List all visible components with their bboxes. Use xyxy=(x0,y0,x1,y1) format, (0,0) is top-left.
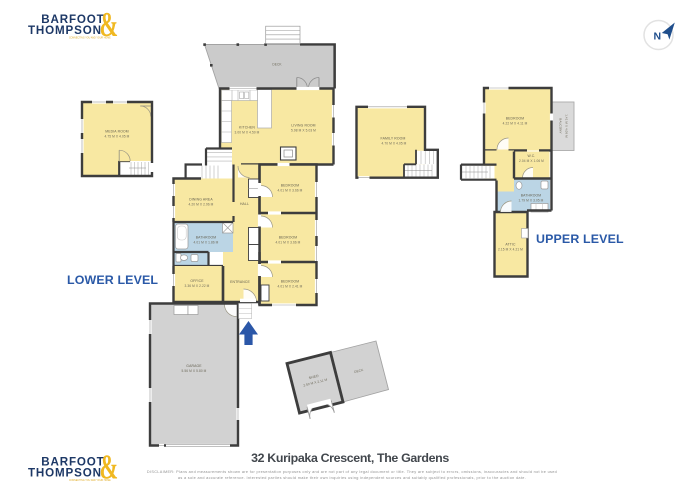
svg-text:GARAGE: GARAGE xyxy=(186,364,202,368)
svg-text:W.C.: W.C. xyxy=(528,154,536,158)
svg-text:BATHROOM: BATHROOM xyxy=(521,194,542,198)
svg-text:as a sole and accurate referen: as a sole and accurate reference. Intere… xyxy=(178,476,526,480)
svg-text:2.04 M X 1.06 M: 2.04 M X 1.06 M xyxy=(519,159,544,163)
svg-text:32 Kuripaka Crescent, The Gard: 32 Kuripaka Crescent, The Gardens xyxy=(251,451,449,465)
svg-text:1.79 M X 3.05 M: 1.79 M X 3.05 M xyxy=(519,199,544,203)
svg-text:5.56 M X 5.80 M: 5.56 M X 5.80 M xyxy=(182,369,207,373)
svg-text:DECK: DECK xyxy=(272,63,282,67)
svg-text:4.01 M X 1.86 M: 4.01 M X 1.86 M xyxy=(194,241,219,245)
svg-text:1.41 M X 4.08 M: 1.41 M X 4.08 M xyxy=(565,114,569,138)
svg-text:BEDROOM: BEDROOM xyxy=(506,117,525,121)
svg-text:OFFICE: OFFICE xyxy=(190,279,204,283)
svg-text:2.15 M X 4.21 M: 2.15 M X 4.21 M xyxy=(498,248,523,252)
svg-text:3.00 M X 4.50 M: 3.00 M X 4.50 M xyxy=(235,131,260,135)
svg-text:4.01 M X 2.41 M: 4.01 M X 2.41 M xyxy=(278,285,303,289)
svg-text:4.22 M X 4.11 M: 4.22 M X 4.11 M xyxy=(503,122,528,126)
svg-text:FAMILY ROOM: FAMILY ROOM xyxy=(381,137,406,141)
svg-text:4.20 M X 2.96 M: 4.20 M X 2.96 M xyxy=(189,203,214,207)
svg-text:4.70 M X 4.05 M: 4.70 M X 4.05 M xyxy=(382,142,407,146)
svg-text:BEDROOM: BEDROOM xyxy=(281,280,300,284)
svg-text:MEDIA ROOM: MEDIA ROOM xyxy=(105,130,129,134)
svg-text:BEDROOM: BEDROOM xyxy=(279,236,298,240)
svg-text:KITCHEN: KITCHEN xyxy=(239,126,255,130)
svg-text:DINING AREA: DINING AREA xyxy=(189,198,213,202)
svg-text:4.01 M X 3.66 M: 4.01 M X 3.66 M xyxy=(276,241,301,245)
svg-text:HALL: HALL xyxy=(240,202,249,206)
svg-text:BALCONY: BALCONY xyxy=(559,118,563,133)
svg-text:N: N xyxy=(654,30,662,42)
svg-text:4.75 M X 4.05 M: 4.75 M X 4.05 M xyxy=(105,135,130,139)
svg-text:ENTRANCE: ENTRANCE xyxy=(230,280,250,284)
svg-text:3.36 M X 2.22 M: 3.36 M X 2.22 M xyxy=(185,284,210,288)
svg-text:5.98 M X 5.03 M: 5.98 M X 5.03 M xyxy=(291,129,316,133)
svg-text:DISCLAIMER: Plans and measurem: DISCLAIMER: Plans and measurements shown… xyxy=(147,470,557,474)
svg-text:BATHROOM: BATHROOM xyxy=(196,236,217,240)
svg-text:ATTIC: ATTIC xyxy=(505,243,516,247)
svg-text:BEDROOM: BEDROOM xyxy=(281,184,300,188)
svg-text:LOWER LEVEL: LOWER LEVEL xyxy=(67,273,158,287)
svg-text:LIVING ROOM: LIVING ROOM xyxy=(291,124,315,128)
svg-text:4.01 M X 3.66 M: 4.01 M X 3.66 M xyxy=(278,189,303,193)
svg-text:UPPER LEVEL: UPPER LEVEL xyxy=(536,232,624,246)
